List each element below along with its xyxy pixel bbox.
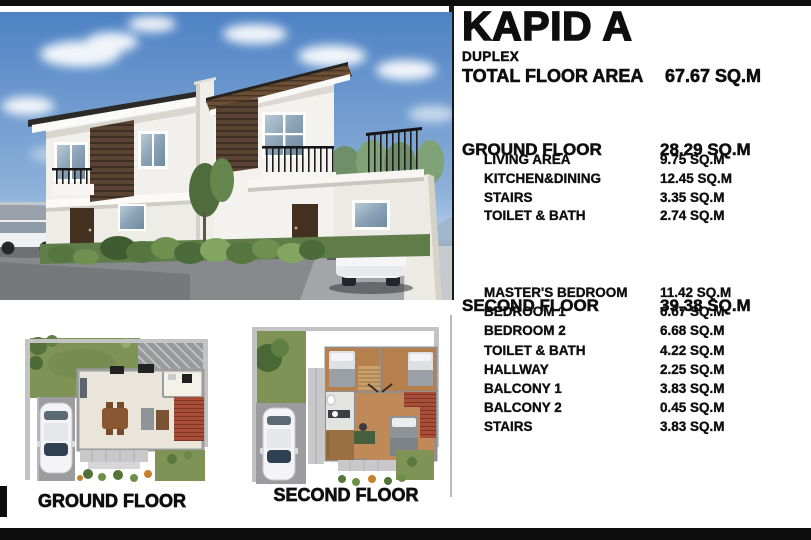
window (118, 204, 146, 231)
page-title: KAPID A (462, 6, 633, 46)
duplex-house-illustration (0, 12, 452, 300)
ground-floor-items: LIVING AREA 9.75 SQ.M KITCHEN&DINING 12.… (462, 152, 806, 227)
area-label: HALLWAY (484, 362, 549, 377)
area-value: 6.68 SQ.M (660, 323, 725, 338)
area-label: KITCHEN&DINING (484, 171, 601, 186)
plan-car (37, 403, 75, 473)
area-label: BALCONY 2 (484, 400, 562, 415)
area-label: BEDROOM 2 (484, 323, 566, 338)
area-label: STAIRS (484, 419, 533, 434)
page-subtitle: DUPLEX (462, 49, 519, 64)
area-label: TOILET & BATH (484, 343, 586, 358)
window (138, 131, 168, 169)
area-row: KITCHEN&DINING 12.45 SQ.M (462, 171, 806, 190)
area-value: 2.25 SQ.M (660, 362, 725, 377)
plan-car (260, 408, 298, 480)
area-row: MASTER'S BEDROOM 11.42 SQ.M (462, 285, 806, 304)
area-row: TOILET & BATH 4.22 SQ.M (462, 343, 806, 362)
area-label: STAIRS (484, 190, 533, 205)
area-row: BEDROOM 1 6.67 SQ.M (462, 304, 806, 323)
area-value: 3.83 SQ.M (660, 381, 725, 396)
area-label: MASTER'S BEDROOM (484, 285, 627, 300)
total-floor-area-row: TOTAL FLOOR AREA 67.67 SQ.M (462, 66, 806, 87)
area-value: 6.67 SQ.M (660, 304, 725, 319)
second-floor-plan-image (250, 322, 440, 488)
area-row: STAIRS 3.83 SQ.M (462, 419, 806, 438)
area-row: HALLWAY 2.25 SQ.M (462, 362, 806, 381)
area-value: 2.74 SQ.M (660, 208, 725, 223)
area-label: LIVING AREA (484, 152, 571, 167)
area-value: 11.42 SQ.M (660, 285, 731, 300)
area-row: BALCONY 1 3.83 SQ.M (462, 381, 806, 400)
area-value: 9.75 SQ.M (660, 152, 725, 167)
left-edge-black-tab (0, 486, 7, 517)
area-value: 3.83 SQ.M (660, 419, 725, 434)
total-label: TOTAL FLOOR AREA (462, 66, 643, 86)
area-row: TOILET & BATH 2.74 SQ.M (462, 208, 806, 227)
area-row: BEDROOM 2 6.68 SQ.M (462, 323, 806, 342)
area-value: 4.22 SQ.M (660, 343, 725, 358)
window (352, 200, 390, 230)
area-value: 12.45 SQ.M (660, 171, 732, 186)
bottom-black-bar (0, 528, 811, 540)
lower-divider-line (450, 315, 452, 497)
area-label: BEDROOM 1 (484, 304, 566, 319)
balcony-railing (52, 168, 94, 195)
house-render-photo (0, 12, 452, 300)
ground-floor-plan-image (22, 328, 210, 483)
area-value: 0.45 SQ.M (660, 400, 725, 415)
area-label: TOILET & BATH (484, 208, 586, 223)
area-value: 3.35 SQ.M (660, 190, 725, 205)
second-floor-items: MASTER'S BEDROOM 11.42 SQ.M BEDROOM 1 6.… (462, 285, 806, 439)
second-floor-caption: SECOND FLOOR (270, 485, 422, 506)
area-row: LIVING AREA 9.75 SQ.M (462, 152, 806, 171)
ground-floor-caption: GROUND FLOOR (38, 491, 184, 512)
area-row: BALCONY 2 0.45 SQ.M (462, 400, 806, 419)
total-value: 67.67 SQ.M (665, 66, 761, 87)
area-label: BALCONY 1 (484, 381, 562, 396)
area-row: STAIRS 3.35 SQ.M (462, 190, 806, 209)
spec-panel: KAPID A DUPLEX TOTAL FLOOR AREA 67.67 SQ… (462, 0, 806, 528)
